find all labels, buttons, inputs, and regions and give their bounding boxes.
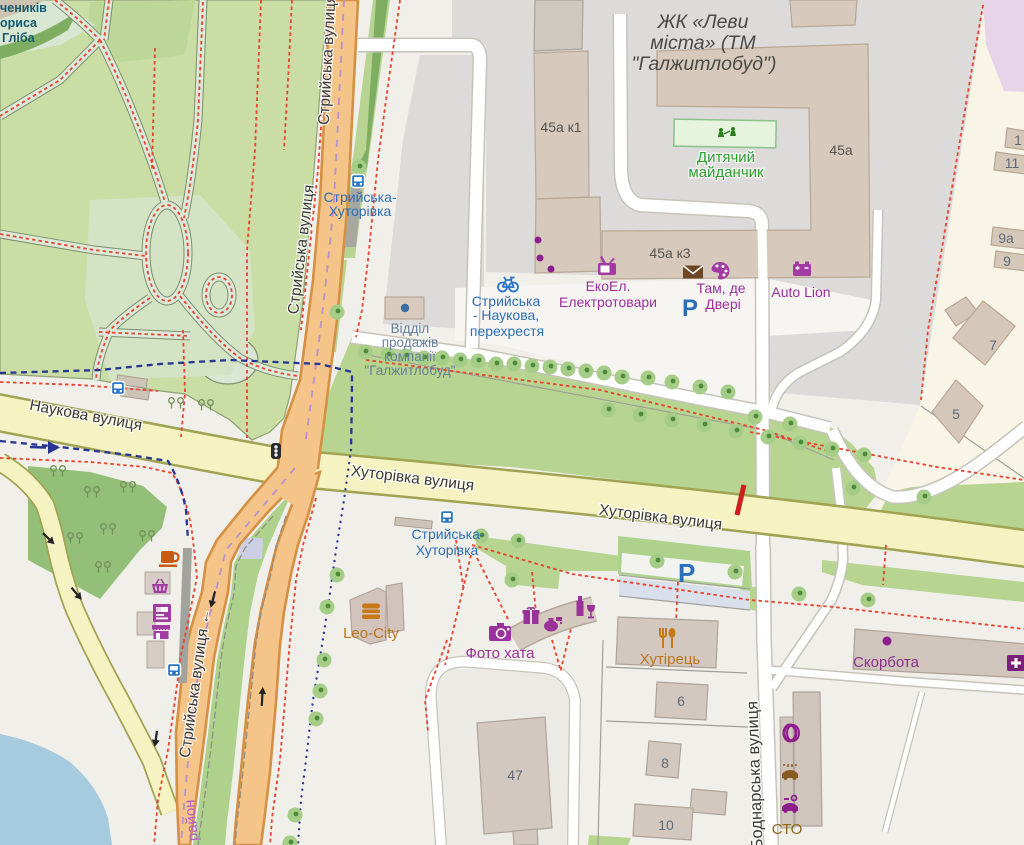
svg-text:P: P	[678, 558, 695, 588]
svg-text:11: 11	[1005, 155, 1020, 171]
svg-text:5: 5	[952, 406, 960, 422]
svg-text:район: район	[181, 799, 202, 842]
svg-text:45а: 45а	[829, 142, 853, 158]
svg-text:Хуторівка: Хуторівка	[416, 542, 479, 558]
svg-text:- Наукова,: - Наукова,	[473, 307, 539, 323]
svg-text:СТО: СТО	[772, 821, 803, 838]
svg-text:9а: 9а	[998, 230, 1014, 246]
svg-text:Auto Lion: Auto Lion	[771, 284, 830, 300]
svg-text:9: 9	[1003, 253, 1011, 269]
svg-text:Хутірець: Хутірець	[640, 651, 701, 668]
svg-text:міста» (ТМ: міста» (ТМ	[650, 32, 756, 54]
svg-text:"Галжитлобуд": "Галжитлобуд"	[364, 363, 455, 378]
svg-text:10: 10	[658, 817, 674, 833]
svg-text:Leo-City: Leo-City	[343, 625, 399, 642]
svg-text:P: P	[682, 295, 698, 322]
svg-text:перехрестя: перехрестя	[470, 323, 544, 339]
svg-text:ЖК «Леви: ЖК «Леви	[657, 11, 749, 33]
svg-text:1: 1	[1014, 132, 1022, 148]
svg-text:47: 47	[507, 767, 523, 783]
svg-text:Там, де: Там, де	[696, 280, 745, 296]
svg-text:майданчик: майданчик	[688, 164, 764, 181]
svg-text:продажів: продажів	[382, 335, 439, 350]
svg-text:Гліба: Гліба	[2, 31, 36, 45]
svg-text:6: 6	[677, 693, 685, 709]
svg-text:ЕкоЕл.: ЕкоЕл.	[586, 278, 631, 294]
svg-text:Двері: Двері	[705, 296, 740, 312]
svg-text:45а к1: 45а к1	[540, 119, 581, 135]
svg-text:8: 8	[661, 755, 669, 771]
svg-text:Стрийська-: Стрийська-	[411, 526, 484, 542]
svg-text:ориса: ориса	[0, 16, 38, 30]
svg-text:7: 7	[989, 337, 997, 353]
svg-text:Фото хата: Фото хата	[465, 645, 535, 662]
svg-text:Скорбота: Скорбота	[853, 654, 920, 671]
svg-text:чеників: чеників	[0, 1, 47, 15]
svg-text:Хуторівка: Хуторівка	[329, 203, 392, 219]
svg-text:45а к3: 45а к3	[649, 245, 690, 261]
svg-text:компанії: компанії	[384, 349, 436, 364]
svg-text:Електротовари: Електротовари	[559, 294, 657, 310]
svg-text:Відділ: Відділ	[391, 321, 430, 336]
svg-text:"Галжитлобуд"): "Галжитлобуд")	[632, 53, 777, 75]
